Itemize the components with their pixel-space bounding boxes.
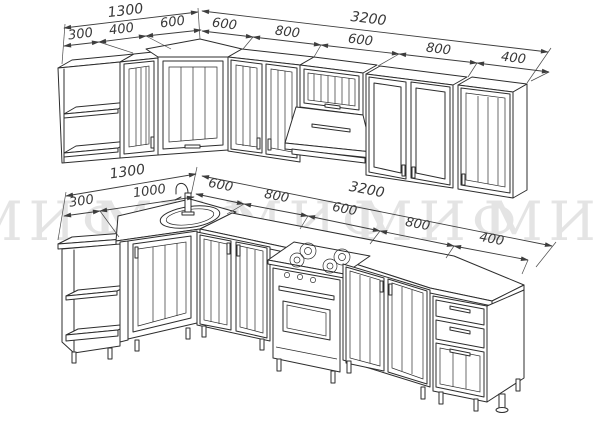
dim-label: 600 [159,14,185,32]
base-double-door-cabinet-left-800 [197,232,270,341]
lattice-door-cabinet-800 [366,66,467,188]
lattice-glass [374,83,401,173]
door-handle [151,137,154,148]
door-handle [185,145,200,148]
door-handle [462,174,465,185]
corner-sink-cabinet [120,231,197,342]
dim-label-base-left-total: 1300 [109,162,147,183]
door-handle [412,167,415,178]
dim-label-upper-right-total: 3200 [350,9,387,29]
dim-label: 400 [108,21,134,39]
oven [273,268,340,372]
dim-label: 300 [67,26,93,44]
door-handle [268,139,271,150]
door-handle [237,245,240,256]
door-handle [135,247,138,258]
door-handle [380,281,383,292]
dim-label: 800 [274,24,300,42]
dim-label: 600 [347,32,373,50]
watermark-text: МИФ [487,190,600,253]
door-handle [389,284,392,295]
range-hood [285,107,372,163]
dim-label-upper-left-total: 1300 [107,1,144,21]
kitchen-drawing-page: МИФ МИФ МИФ МИФ МИФ [0,0,600,424]
dim-label: 800 [425,41,451,59]
door-handle [227,243,230,254]
cabinet-end-panel [513,84,527,198]
upper-single-door-cabinet-400 [458,77,527,198]
hood-cabinet [300,57,377,115]
door-handle [402,165,405,176]
drawer-unit-400 [433,290,524,402]
dim-label: 600 [211,16,237,34]
lattice-glass [416,88,445,179]
dim-label: 400 [500,50,526,68]
door-handle [257,138,260,149]
kitchen-technical-drawing: МИФ МИФ МИФ МИФ МИФ [0,0,600,424]
